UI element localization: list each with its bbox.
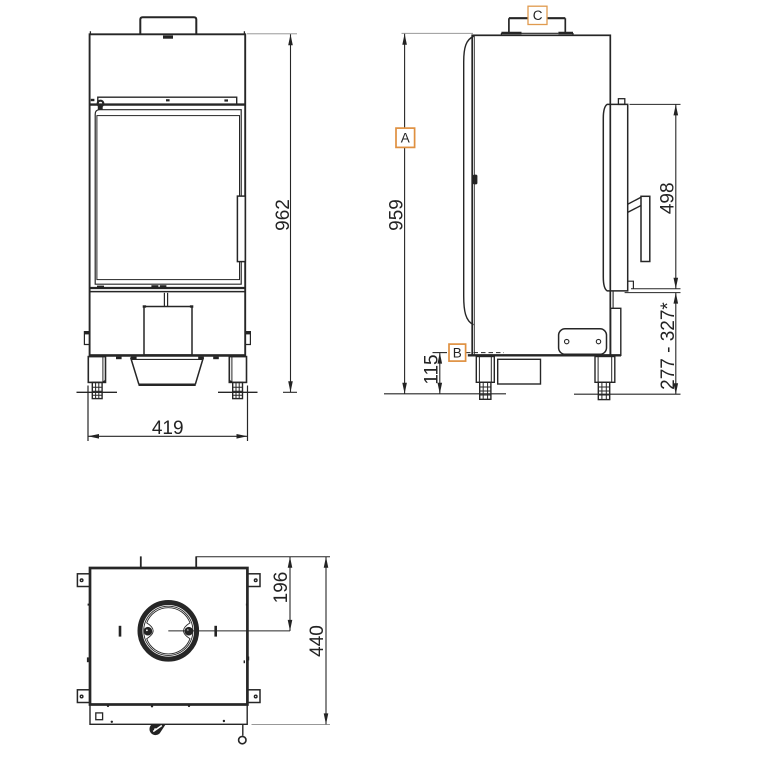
svg-text:419: 419 — [152, 418, 184, 439]
svg-text:C: C — [533, 8, 543, 23]
svg-text:B: B — [453, 345, 462, 360]
svg-text:440: 440 — [307, 625, 328, 657]
svg-text:277 - 327*: 277 - 327* — [658, 302, 679, 390]
svg-text:196: 196 — [271, 572, 292, 604]
svg-text:115: 115 — [422, 354, 443, 384]
svg-text:959: 959 — [387, 199, 408, 231]
svg-text:A: A — [401, 131, 410, 146]
svg-text:962: 962 — [273, 199, 294, 231]
svg-text:498: 498 — [658, 182, 679, 214]
